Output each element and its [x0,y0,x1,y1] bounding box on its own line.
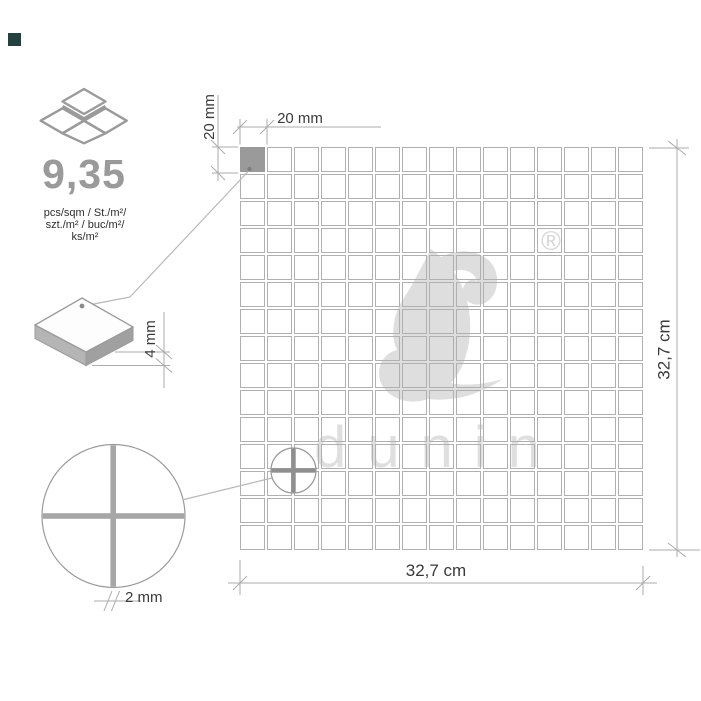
mosaic-tile [294,498,319,523]
mosaic-tile [456,201,481,226]
mosaic-tile [456,363,481,388]
mosaic-tile [591,444,616,469]
mosaic-tile [591,228,616,253]
mosaic-tile [267,471,292,496]
mosaic-tile [564,255,589,280]
mosaic-tile [510,471,535,496]
mosaic-tile [510,336,535,361]
mosaic-tile [294,336,319,361]
mosaic-tile [564,525,589,550]
mosaic-tile [456,525,481,550]
mosaic-tile [429,309,454,334]
mosaic-tile [321,417,346,442]
mosaic-tile [375,228,400,253]
mosaic-tile [402,282,427,307]
mosaic-tile [402,417,427,442]
mosaic-tile [375,471,400,496]
mosaic-tile [510,525,535,550]
mosaic-tile [483,255,508,280]
mosaic-tile [402,336,427,361]
mosaic-tile [456,390,481,415]
mosaic-tile [321,174,346,199]
mosaic-tile [348,444,373,469]
mosaic-tile [456,309,481,334]
mosaic-tile [321,282,346,307]
pieces-per-sqm-value: 9,35 [14,151,154,198]
tile-3d-illustration [35,298,133,366]
mosaic-tile [402,201,427,226]
tiles-stack-icon [41,89,127,143]
mosaic-tile [267,201,292,226]
mosaic-tile [456,498,481,523]
mosaic-tile [456,471,481,496]
mosaic-tile [348,282,373,307]
mosaic-tile [402,363,427,388]
mosaic-tile [564,336,589,361]
mosaic-tile [429,228,454,253]
mosaic-grid [240,147,643,550]
mosaic-tile [564,282,589,307]
mosaic-tile [240,336,265,361]
mosaic-tile [483,282,508,307]
mosaic-tile [402,498,427,523]
mosaic-tile [483,309,508,334]
mosaic-tile [375,309,400,334]
mosaic-tile [348,147,373,172]
mosaic-tile [591,336,616,361]
mosaic-tile [483,417,508,442]
mosaic-tile [429,147,454,172]
mosaic-tile [510,201,535,226]
mosaic-tile [429,444,454,469]
mosaic-tile [510,417,535,442]
mosaic-tile [294,228,319,253]
mosaic-tile [267,255,292,280]
mosaic-tile [294,525,319,550]
mosaic-tile [375,390,400,415]
mosaic-tile [456,444,481,469]
mosaic-tile [375,174,400,199]
mosaic-tile [348,309,373,334]
mosaic-tile [402,228,427,253]
units-text: pcs/sqm / St./m²/ szt./m² / buc/m²/ ks/m… [15,207,155,243]
mosaic-tile [267,390,292,415]
mosaic-tile [375,525,400,550]
mosaic-tile [537,309,562,334]
mosaic-tile [375,363,400,388]
mosaic-tile [591,363,616,388]
mosaic-tile [564,390,589,415]
mosaic-tile [294,174,319,199]
mosaic-tile [240,201,265,226]
mosaic-tile [240,471,265,496]
chip-width-label: 20 mm [270,110,330,127]
mosaic-tile [456,336,481,361]
mosaic-tile [591,201,616,226]
mosaic-tile [510,282,535,307]
mosaic-tile [618,363,643,388]
mosaic-tile [348,201,373,226]
mosaic-tile [456,228,481,253]
mosaic-tile [294,363,319,388]
mosaic-tile [294,255,319,280]
highlighted-tile [240,147,265,172]
mosaic-tile [402,309,427,334]
mosaic-tile [402,444,427,469]
mosaic-tile [240,282,265,307]
mosaic-tile [240,417,265,442]
mosaic-tile [564,363,589,388]
mosaic-tile [348,255,373,280]
mosaic-tile [510,228,535,253]
mosaic-tile [240,309,265,334]
mosaic-tile [375,417,400,442]
mosaic-tile [294,147,319,172]
mosaic-tile [618,498,643,523]
mosaic-tile [321,498,346,523]
mosaic-tile [456,282,481,307]
mosaic-tile [618,228,643,253]
mosaic-tile [375,336,400,361]
mosaic-tile [348,390,373,415]
mosaic-tile [483,525,508,550]
mosaic-tile [348,228,373,253]
mosaic-tile [375,201,400,226]
mosaic-tile [591,309,616,334]
mosaic-tile [456,255,481,280]
mosaic-tile [375,444,400,469]
mosaic-tile [375,255,400,280]
mosaic-tile [429,201,454,226]
mosaic-tile [267,444,292,469]
mosaic-tile [591,471,616,496]
mosaic-tile [240,255,265,280]
mosaic-tile [483,444,508,469]
mosaic-tile [267,363,292,388]
mosaic-tile [429,174,454,199]
mosaic-tile [537,444,562,469]
mosaic-tile [429,390,454,415]
mosaic-tile [267,282,292,307]
mosaic-tile [267,336,292,361]
chip-thickness-label: 4 mm [142,299,158,379]
mosaic-tile [321,336,346,361]
mosaic-tile [537,201,562,226]
mosaic-tile [294,417,319,442]
mosaic-tile [267,498,292,523]
mosaic-tile [510,498,535,523]
mosaic-tile [483,498,508,523]
mosaic-tile [618,174,643,199]
mosaic-tile [240,390,265,415]
mosaic-tile [294,201,319,226]
sheet-width-label: 32,7 cm [386,561,486,581]
units-line-1: pcs/sqm / St./m²/ [15,207,155,219]
mosaic-tile [564,174,589,199]
mosaic-tile [348,363,373,388]
mosaic-tile [402,390,427,415]
mosaic-tile [537,471,562,496]
mosaic-tile [294,309,319,334]
mosaic-tile [321,255,346,280]
mosaic-tile [429,498,454,523]
mosaic-tile [375,282,400,307]
leader-anchor-dot [80,304,85,309]
mosaic-tile [375,498,400,523]
mosaic-tile [618,471,643,496]
mosaic-tile [591,498,616,523]
mosaic-tile [348,525,373,550]
mosaic-tile [294,390,319,415]
mosaic-tile [429,255,454,280]
mosaic-tile [483,147,508,172]
mosaic-tile [483,336,508,361]
mosaic-tile [321,363,346,388]
mosaic-tile [618,147,643,172]
mosaic-tile [591,147,616,172]
mosaic-tile [618,201,643,226]
mosaic-tile [294,444,319,469]
mosaic-tile [429,363,454,388]
mosaic-tile [321,201,346,226]
mosaic-tile [240,228,265,253]
grout-cross [42,444,185,588]
mosaic-tile [564,228,589,253]
mosaic-tile [537,336,562,361]
mosaic-tile [483,471,508,496]
mosaic-tile [402,174,427,199]
mosaic-tile [456,174,481,199]
mosaic-tile [591,282,616,307]
mosaic-tile [294,282,319,307]
mosaic-tile [510,363,535,388]
mosaic-tile [429,525,454,550]
mosaic-tile [564,201,589,226]
mosaic-tile [240,525,265,550]
mosaic-tile [618,336,643,361]
mosaic-tile [240,498,265,523]
color-swatch [8,33,21,46]
mosaic-tile [537,363,562,388]
mosaic-tile [591,390,616,415]
mosaic-tile [321,228,346,253]
mosaic-tile [510,390,535,415]
mosaic-tile [348,417,373,442]
mosaic-tile [618,525,643,550]
mosaic-tile [483,174,508,199]
mosaic-tile [483,201,508,226]
mosaic-tile [348,471,373,496]
mosaic-tile [564,309,589,334]
mosaic-tile [429,471,454,496]
mosaic-tile [537,498,562,523]
mosaic-tile [267,228,292,253]
mosaic-tile [510,174,535,199]
mosaic-tile [510,309,535,334]
units-line-2: szt./m² / buc/m²/ [15,219,155,231]
product-diagram: 9,35 pcs/sqm / St./m²/ szt./m² / buc/m²/… [0,0,701,701]
mosaic-tile [618,417,643,442]
joint-detail-circle [42,444,185,611]
mosaic-tile [429,282,454,307]
mosaic-tile [537,228,562,253]
mosaic-tile [618,255,643,280]
units-line-3: ks/m² [15,231,155,243]
mosaic-tile [483,390,508,415]
mosaic-tile [591,417,616,442]
mosaic-tile [348,498,373,523]
mosaic-tile [321,444,346,469]
mosaic-tile [321,309,346,334]
mosaic-tile [402,471,427,496]
mosaic-tile [618,444,643,469]
mosaic-tile [591,525,616,550]
mosaic-tile [483,363,508,388]
mosaic-tile [267,147,292,172]
mosaic-tile [564,471,589,496]
mosaic-tile [537,390,562,415]
thickness-dimension-lines [92,312,172,388]
mosaic-tile [267,174,292,199]
mosaic-tile [321,525,346,550]
chip-height-label: 20 mm [201,77,217,157]
mosaic-tile [267,417,292,442]
mosaic-tile [564,147,589,172]
mosaic-tile [240,174,265,199]
mosaic-tile [537,282,562,307]
mosaic-tile [267,309,292,334]
mosaic-tile [591,174,616,199]
joint-width-label: 2 mm [125,589,170,606]
mosaic-tile [240,444,265,469]
mosaic-tile [429,336,454,361]
mosaic-tile [240,363,265,388]
mosaic-tile [618,390,643,415]
mosaic-tile [510,147,535,172]
mosaic-tile [375,147,400,172]
mosaic-tile [537,525,562,550]
mosaic-tile [348,174,373,199]
mosaic-tile [537,255,562,280]
mosaic-tile [321,471,346,496]
sheet-height-label: 32,7 cm [655,300,672,400]
mosaic-tile [537,174,562,199]
mosaic-tile [564,444,589,469]
mosaic-tile [429,417,454,442]
mosaic-tile [402,255,427,280]
mosaic-tile [510,444,535,469]
mosaic-tile [591,255,616,280]
mosaic-tile [294,471,319,496]
mosaic-tile [456,417,481,442]
mosaic-tile [402,147,427,172]
mosaic-tile [402,525,427,550]
mosaic-tile [456,147,481,172]
mosaic-tile [618,282,643,307]
mosaic-tile [537,417,562,442]
mosaic-tile [321,390,346,415]
mosaic-tile [564,417,589,442]
mosaic-tile [537,147,562,172]
mosaic-tile [618,309,643,334]
mosaic-tile [267,525,292,550]
mosaic-tile [564,498,589,523]
mosaic-tile [321,147,346,172]
mosaic-tile [483,228,508,253]
mosaic-tile [348,336,373,361]
mosaic-tile [510,255,535,280]
